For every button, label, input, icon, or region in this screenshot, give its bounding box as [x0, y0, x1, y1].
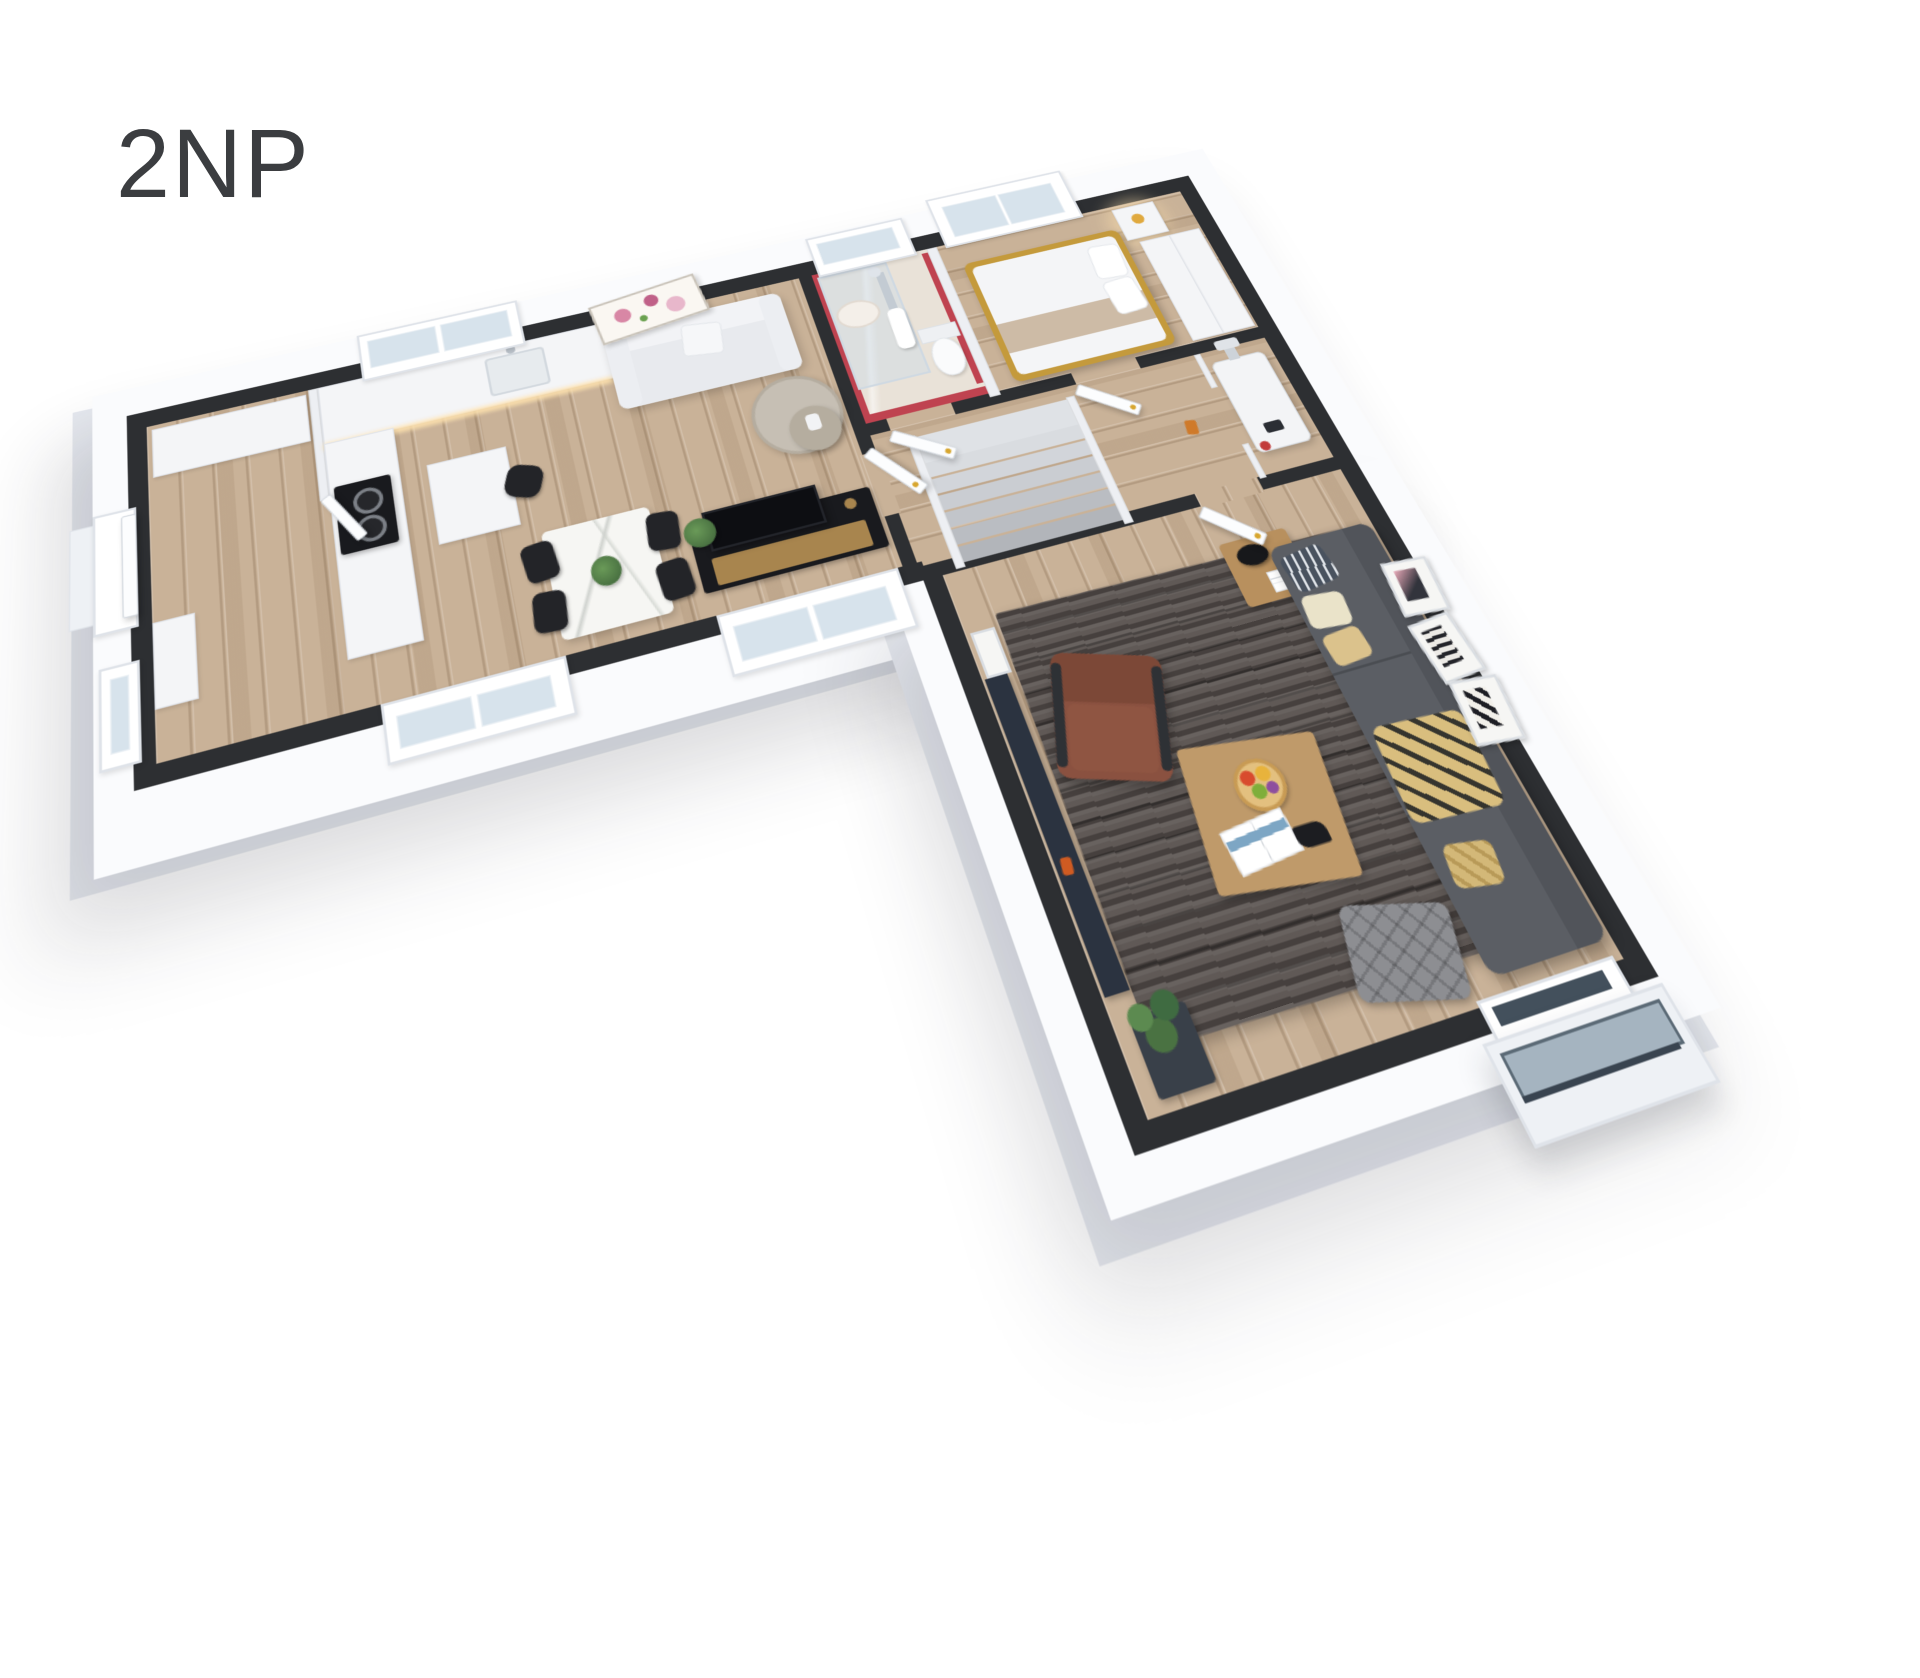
wall-art-print: [1394, 568, 1430, 602]
door-handle: [1254, 532, 1262, 540]
entry-console-cabinet: [152, 613, 199, 711]
armchair-back-cushion: [1049, 653, 1165, 705]
floorplan: [127, 176, 1715, 1632]
floor-label: 2NP: [116, 108, 311, 220]
fruit-bowl: [1227, 755, 1295, 814]
entrance-step: [69, 525, 96, 632]
leather-armchair: [1049, 653, 1174, 782]
pillow-gold-pattern: [1441, 839, 1507, 889]
door-handle: [945, 448, 952, 455]
dining-chair: [531, 589, 569, 635]
window-west-small-pane: [110, 675, 131, 755]
black-table-lamp: [1233, 541, 1273, 569]
door-handle: [911, 481, 919, 489]
pillow-navy-striped: [1278, 542, 1342, 594]
pillow-cream: [1299, 590, 1354, 630]
pillow-gold: [1320, 624, 1375, 668]
wall-art-print: [1463, 687, 1504, 729]
floorplan-3d-scene: [260, 300, 1240, 1100]
armchair-seat-cushion: [1066, 704, 1160, 774]
dining-chair: [645, 510, 682, 552]
door-handle: [1130, 404, 1137, 410]
white-sofa-pillow: [680, 321, 725, 357]
magazine: [1219, 807, 1305, 877]
entrance-door: [121, 513, 139, 619]
